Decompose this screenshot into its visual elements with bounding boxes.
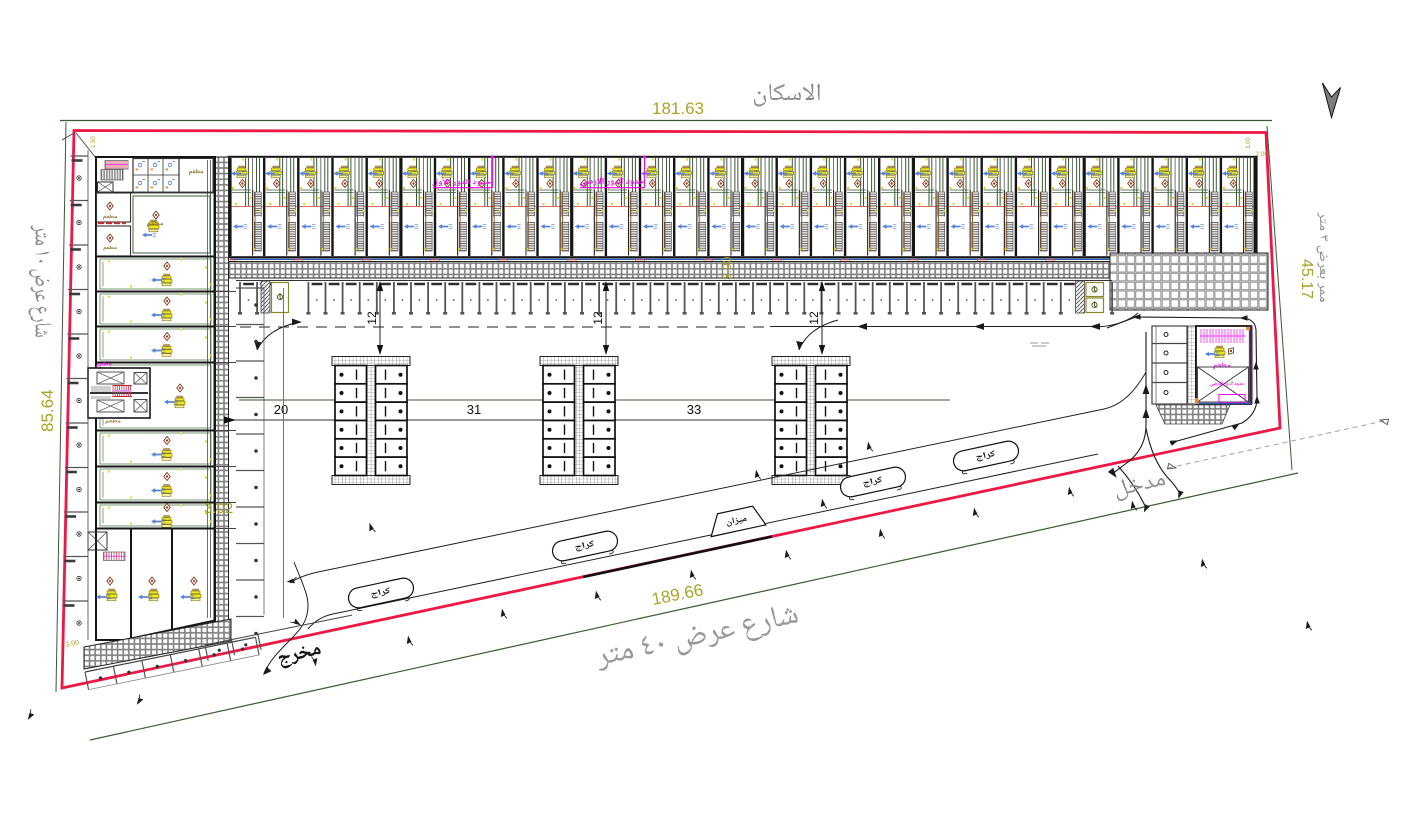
svg-text:12: 12 bbox=[807, 311, 821, 325]
svg-text:85.64: 85.64 bbox=[38, 389, 57, 432]
svg-text:1.50: 1.50 bbox=[91, 136, 97, 148]
svg-text:33: 33 bbox=[687, 402, 701, 417]
svg-text:20: 20 bbox=[274, 402, 288, 417]
svg-text:12: 12 bbox=[591, 311, 605, 325]
svg-text:181.63: 181.63 bbox=[652, 99, 704, 118]
svg-text:3.02: 3.02 bbox=[204, 500, 233, 517]
svg-text:3.00: 3.00 bbox=[720, 256, 734, 280]
svg-text:12: 12 bbox=[365, 311, 379, 325]
svg-text:2.00: 2.00 bbox=[1256, 152, 1268, 158]
svg-text:31: 31 bbox=[467, 402, 481, 417]
svg-text:3.00: 3.00 bbox=[1246, 137, 1252, 149]
svg-text:45.17: 45.17 bbox=[1298, 259, 1315, 299]
